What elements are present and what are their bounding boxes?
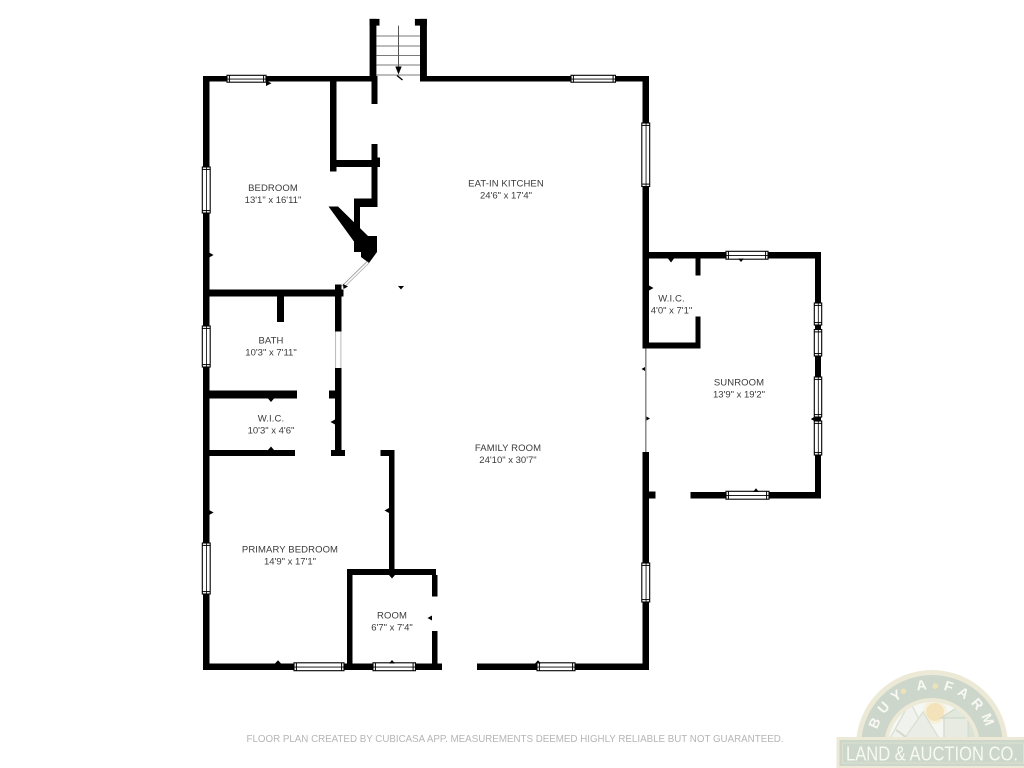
svg-text:24'10" x 30'7": 24'10" x 30'7" — [479, 455, 536, 466]
svg-text:PRIMARY BEDROOM: PRIMARY BEDROOM — [242, 545, 338, 556]
svg-text:10'3" x 4'6": 10'3" x 4'6" — [248, 425, 295, 436]
svg-text:FLOOR PLAN CREATED BY CUBICASA: FLOOR PLAN CREATED BY CUBICASA APP. MEAS… — [247, 733, 784, 745]
svg-text:BEDROOM: BEDROOM — [248, 183, 298, 194]
svg-text:LAND & AUCTION CO.: LAND & AUCTION CO. — [846, 743, 1018, 766]
svg-text:FAMILY ROOM: FAMILY ROOM — [475, 443, 541, 454]
svg-text:24'6" x 17'4": 24'6" x 17'4" — [480, 190, 532, 201]
svg-text:6'7" x 7'4": 6'7" x 7'4" — [371, 622, 413, 633]
svg-text:BATH: BATH — [258, 336, 283, 347]
svg-text:10'3" x 7'11": 10'3" x 7'11" — [245, 347, 296, 358]
svg-text:EAT-IN KITCHEN: EAT-IN KITCHEN — [468, 179, 544, 190]
svg-text:13'1" x 16'11": 13'1" x 16'11" — [245, 195, 302, 206]
svg-text:W.I.C.: W.I.C. — [658, 294, 684, 305]
svg-text:4'0" x 7'1": 4'0" x 7'1" — [651, 305, 693, 316]
svg-text:W.I.C.: W.I.C. — [258, 414, 284, 425]
svg-text:13'9" x 19'2": 13'9" x 19'2" — [713, 389, 765, 400]
svg-text:SUNROOM: SUNROOM — [714, 378, 764, 389]
svg-text:14'9" x 17'1": 14'9" x 17'1" — [264, 556, 316, 567]
svg-text:ROOM: ROOM — [377, 611, 407, 622]
